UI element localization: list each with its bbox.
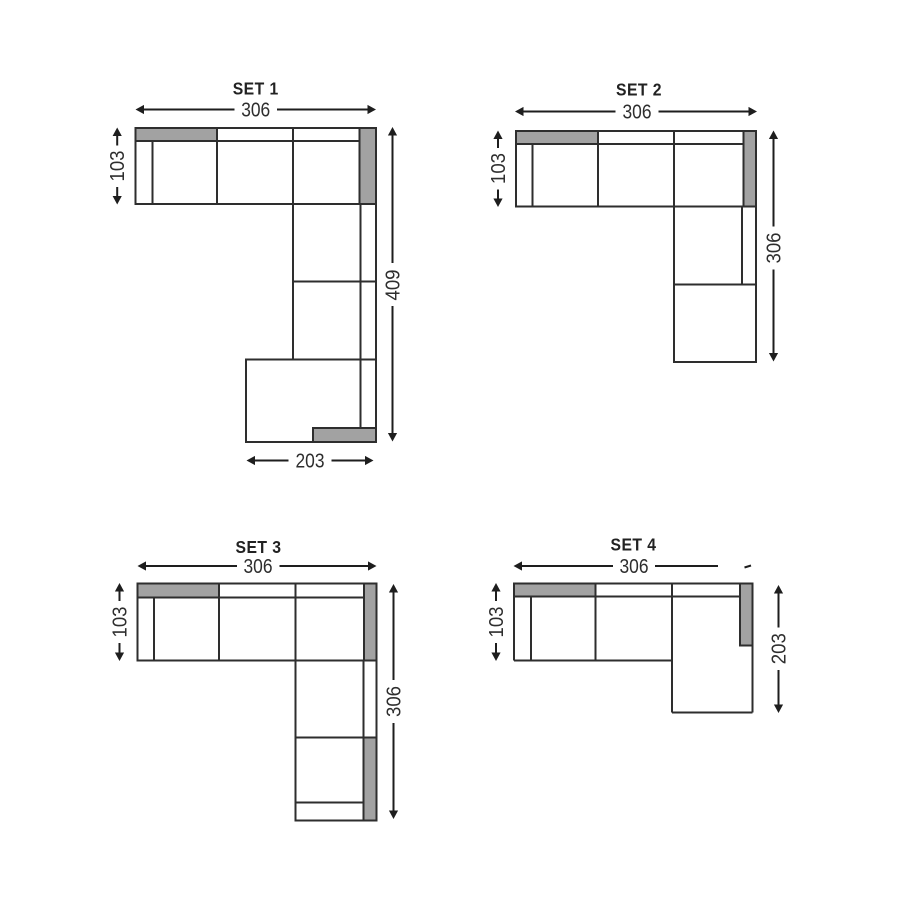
svg-text:103: 103 (107, 151, 129, 182)
svg-text:SET 3: SET 3 (236, 537, 282, 557)
svg-text:103: 103 (488, 153, 510, 184)
svg-text:SET 4: SET 4 (611, 535, 657, 555)
svg-text:306: 306 (384, 686, 406, 717)
svg-text:203: 203 (296, 451, 325, 473)
svg-text:SET 2: SET 2 (616, 80, 662, 100)
svg-text:409: 409 (383, 270, 405, 301)
svg-text:306: 306 (623, 102, 652, 124)
svg-text:306: 306 (241, 100, 270, 122)
svg-text:306: 306 (764, 233, 786, 264)
svg-text:306: 306 (244, 556, 273, 578)
svg-text:203: 203 (769, 633, 791, 664)
svg-text:SET 1: SET 1 (233, 78, 279, 98)
svg-text:306: 306 (620, 556, 649, 578)
svg-text:103: 103 (486, 607, 508, 638)
svg-text:103: 103 (110, 607, 132, 638)
